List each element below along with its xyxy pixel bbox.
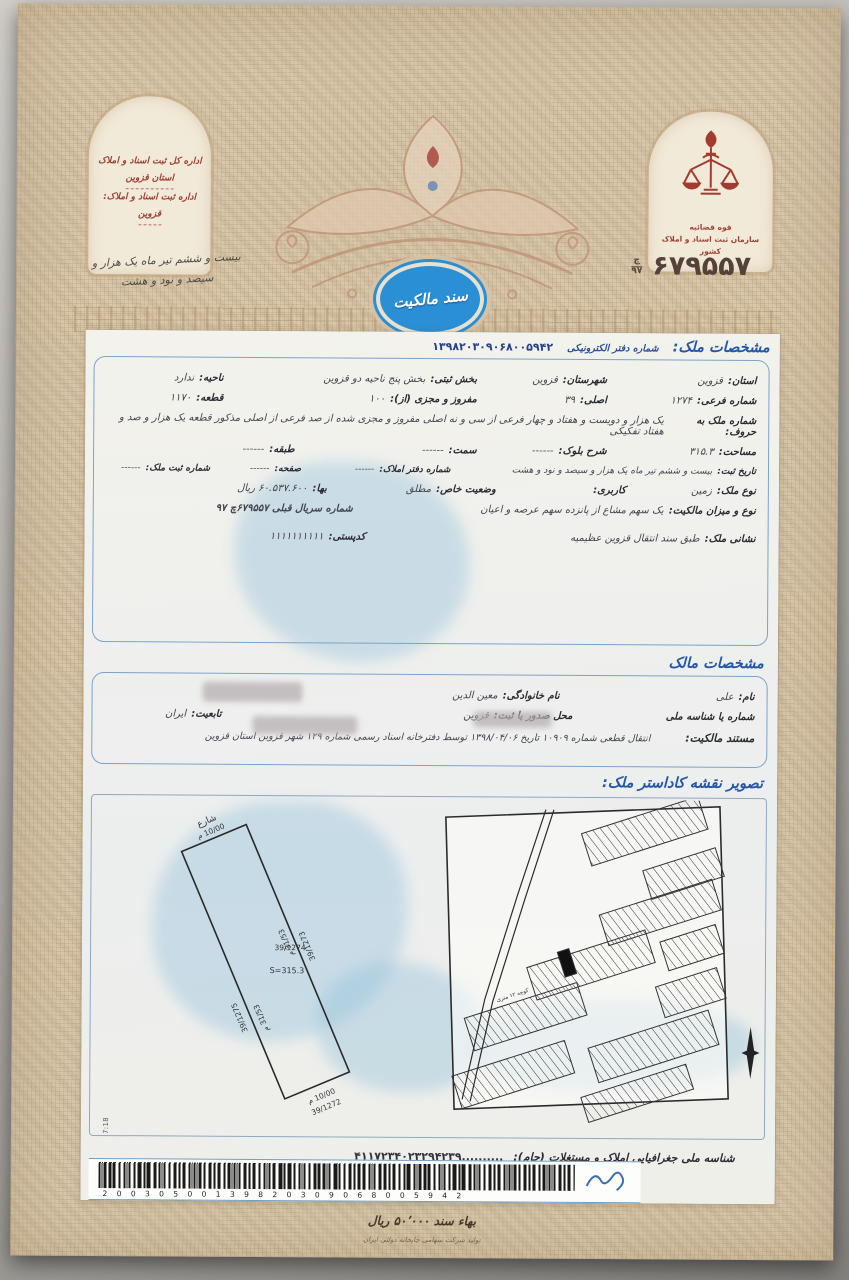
owner-section-title: مشخصات مالک [84, 652, 764, 672]
emblem-caption-1: قوه قضائیه [689, 222, 731, 234]
property-row-registration: تاریخ ثبت:بیست و ششم تیر ماه یک هزار و س… [106, 463, 756, 477]
property-details-box: استان:قزوین شهرستان:قزوین بخش ثبتی:بخش پ… [92, 356, 770, 646]
svg-text:S=315.3: S=315.3 [270, 966, 305, 975]
serial-number: ۶۷۹۵۵۷ [652, 250, 751, 282]
property-row-letters: شماره ملک به حروف:یک هزار و دویست و هفتا… [106, 412, 756, 438]
office-line-3: اداره ثبت اسناد و املاک: [103, 189, 196, 207]
owner-row-id: شماره یا شناسه ملی محل صدور یا ثبت:قزوین… [104, 708, 754, 723]
deed-title-text: سند مالکیت [392, 286, 468, 311]
serial-prefix: چ ۹۷ [631, 255, 642, 277]
svg-text:12:47:18_1396/05/08_4023294.55: 12:47:18_1396/05/08_4023294.55_411723.20… [101, 1117, 110, 1135]
deed-price: بهاء سند ۵۰٬۰۰۰ ریال [10, 1211, 833, 1230]
cadastre-map-box: 12:47:18_1396/05/08_4023294.55_411723.20… [89, 794, 767, 1140]
compass-icon [741, 1027, 759, 1079]
property-section-title: مشخصات ملک: [673, 340, 770, 357]
office-line-2: استان قزوین [126, 170, 174, 189]
property-row-plate: شماره فرعی:۱۲۷۴ اصلی:۳۹ مفروز و مجزی (از… [106, 392, 756, 407]
office-line-4: قزوین [138, 206, 161, 225]
property-row-area: مساحت:۳۱۵.۳ شرح بلوک:------ سمت:------ ط… [106, 443, 756, 458]
redacted-extra [252, 716, 357, 735]
property-row-address: نشانی ملک:طبق سند انتقال قزوین عظیمیه کد… [106, 522, 756, 545]
eoffice-number: ۱۳۹۸۲۰۳۰۹۰۶۸۰۰۵۹۴۲ [432, 340, 553, 354]
justice-scales-icon [676, 126, 747, 222]
deed-paper: اداره کل ثبت اسناد و املاک استان قزوین ا… [10, 3, 841, 1260]
property-row-location: استان:قزوین شهرستان:قزوین بخش ثبتی:بخش پ… [107, 372, 757, 387]
scanned-deed-photo: اداره کل ثبت اسناد و املاک استان قزوین ا… [0, 0, 849, 1280]
form-sheet: مشخصات ملک: شماره دفتر الکترونیکی ۱۳۹۸۲۰… [81, 330, 780, 1204]
redacted-family-extra [203, 682, 303, 703]
svg-text:39/1274: 39/1274 [274, 943, 305, 952]
owner-details-box: نام:علی نام خانوادگی:معین الدین شماره یا… [91, 672, 768, 768]
parcel-sketch: 12:47:18_1396/05/08_4023294.55_411723.20… [94, 797, 436, 1135]
deed-title-badge: سند مالکیت [376, 262, 484, 337]
svg-text:31/53 م: 31/53 م [252, 1003, 271, 1033]
barcode-digits: 2 0 0 3 0 5 0 0 1 3 9 8 2 0 3 0 9 0 6 8 … [103, 1189, 465, 1200]
owner-row-deed-basis: مستند مالکیت: انتقال قطعی شماره ۱۰۹۰۹ تا… [104, 728, 754, 745]
left-office-arch: اداره کل ثبت اسناد و املاک استان قزوین ا… [88, 96, 211, 275]
emblem-arch: قوه قضائیه سازمان ثبت اسناد و املاک کشور [648, 111, 773, 272]
office-line-1: اداره کل ثبت اسناد و املاک [98, 153, 202, 171]
city-block-map: کوچه ۱۲ متری [432, 799, 764, 1137]
handwritten-mark [583, 1164, 627, 1198]
eoffice-label: شماره دفتر الکترونیکی [567, 343, 659, 355]
property-row-ownership: نوع و میزان مالکیت:یک سهم مشاع از پانزده… [106, 502, 756, 517]
cadastre-section-title: تصویر نقشه کاداستر ملک: [83, 772, 763, 792]
printer-credit: تولید شرکت سهامی چاپخانه دولتی ایران [10, 1233, 833, 1246]
barcode [99, 1162, 575, 1191]
property-row-type: نوع ملک:زمین کاربری: وضعیت خاص:مطلق بها:… [106, 482, 756, 497]
redacted-national-id [473, 711, 551, 727]
barcode-strip: 2 0 0 3 0 5 0 0 1 3 9 8 2 0 3 0 9 0 6 8 … [89, 1158, 641, 1203]
serial-number-row: چ ۹۷ ۶۷۹۵۵۷ [591, 250, 791, 282]
